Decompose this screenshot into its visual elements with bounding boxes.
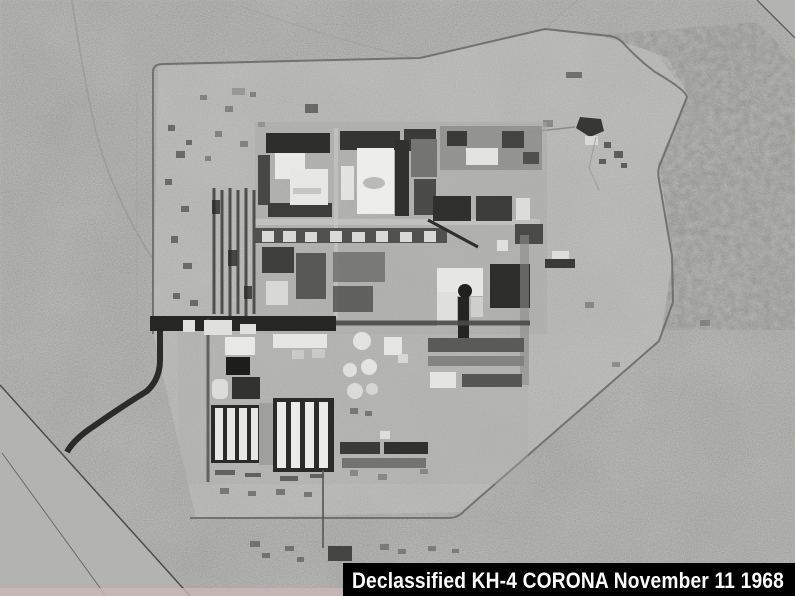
building-white — [204, 320, 232, 335]
ground-mark — [585, 302, 594, 308]
barracks-roof — [319, 402, 328, 468]
small-structure — [566, 72, 582, 78]
barracks-roof — [215, 408, 223, 460]
building-dark — [232, 377, 260, 399]
building-white — [384, 337, 402, 355]
photo-canvas: Declassified KH-4 CORONA November 11 196… — [0, 0, 795, 596]
ground-mark — [452, 549, 459, 553]
building-dark — [502, 131, 524, 148]
ground-mark — [176, 151, 185, 158]
building-white — [292, 350, 304, 359]
building-dark — [266, 133, 330, 153]
building-white — [400, 232, 412, 242]
ground-mark — [280, 476, 298, 481]
ground-mark — [165, 179, 172, 185]
ground-mark — [428, 546, 436, 551]
ground-mark — [398, 549, 406, 554]
small-structure — [621, 163, 627, 168]
building-dark — [262, 247, 294, 273]
building-white — [273, 334, 327, 348]
building-white — [466, 148, 498, 165]
ground-mark — [168, 125, 175, 131]
building-gray — [296, 253, 326, 299]
ground-mark — [305, 104, 318, 113]
building-dark — [476, 196, 512, 221]
ground-mark — [250, 92, 256, 97]
building-white — [262, 231, 274, 242]
building-dark — [226, 357, 250, 375]
small-structure — [599, 159, 606, 164]
building-dark — [258, 155, 270, 205]
ground-mark — [276, 489, 285, 495]
building-white — [266, 281, 288, 305]
street-gap — [259, 403, 273, 465]
ground-mark — [190, 300, 198, 306]
small-structure — [614, 151, 623, 158]
ground-mark — [215, 131, 222, 137]
building-dark — [333, 286, 373, 312]
building-gray — [411, 139, 437, 177]
ground-mark — [350, 470, 358, 476]
ground-mark — [225, 106, 233, 112]
dark-patch — [228, 250, 237, 266]
caption: Declassified KH-4 CORONA November 11 196… — [343, 563, 795, 596]
barracks-roof — [277, 402, 286, 468]
storage-tank — [347, 383, 363, 399]
building-dark — [523, 152, 539, 164]
dark-patch — [328, 546, 352, 561]
building-white — [471, 297, 483, 317]
building-white — [352, 232, 365, 242]
building-white — [240, 324, 256, 334]
roof-mark — [363, 177, 385, 189]
building-white — [430, 372, 456, 388]
ground-mark — [171, 236, 178, 243]
ground-mark — [420, 469, 428, 474]
building-row-base — [428, 338, 524, 352]
ground-mark — [248, 491, 256, 496]
reactor-dome — [458, 284, 472, 298]
building-white — [398, 354, 408, 363]
ground-mark — [220, 488, 229, 494]
building-white — [376, 231, 388, 242]
dark-patch — [212, 200, 220, 214]
ground-mark — [700, 320, 710, 326]
caption-text: Declassified KH-4 CORONA November 11 196… — [352, 568, 784, 593]
storage-tank — [343, 363, 357, 377]
barracks-roof — [305, 402, 314, 468]
building-white — [212, 379, 228, 399]
building-dark — [433, 196, 471, 221]
building-dark — [414, 179, 436, 215]
building-gray — [462, 374, 522, 387]
building-gray — [342, 458, 426, 468]
building-white — [283, 231, 296, 242]
ground-mark — [200, 95, 207, 100]
small-structure — [604, 142, 611, 148]
ground-mark — [262, 553, 270, 558]
dark-patch — [244, 286, 252, 299]
outlying-structure-white — [552, 251, 569, 259]
building-white — [330, 231, 342, 242]
barracks-roof — [239, 408, 247, 460]
building-white — [183, 320, 195, 332]
ground-mark — [173, 293, 180, 299]
ground-mark — [250, 541, 260, 547]
satellite-photo: Declassified KH-4 CORONA November 11 196… — [0, 0, 795, 596]
barracks-roof — [251, 408, 258, 460]
building-dark — [340, 131, 400, 150]
building-white — [380, 431, 390, 439]
building-dark — [447, 131, 467, 146]
building-white — [312, 349, 325, 358]
ground-mark — [304, 492, 312, 497]
building-white — [424, 231, 436, 242]
storage-tank — [353, 332, 371, 350]
storage-tank — [361, 359, 377, 375]
ground-mark — [186, 140, 192, 145]
ground-mark — [183, 263, 192, 269]
ground-mark — [240, 141, 248, 147]
building-dark — [340, 442, 380, 454]
ground-mark — [365, 411, 372, 416]
building-white — [497, 240, 508, 251]
building-shade — [293, 188, 321, 194]
building-dark — [384, 442, 428, 454]
building-dark — [395, 140, 409, 216]
building-white — [305, 232, 317, 242]
ground-mark — [380, 544, 389, 550]
building-white — [341, 166, 354, 200]
ground-mark — [285, 546, 294, 551]
photo-scene — [0, 0, 795, 596]
barracks-roof — [227, 408, 235, 460]
ground-mark — [378, 474, 387, 480]
building-dark — [268, 203, 332, 217]
building-white — [290, 169, 328, 205]
ground-mark — [612, 362, 620, 367]
ground-mark — [215, 470, 235, 475]
film-edge-pink-strip — [0, 588, 345, 596]
barracks-roof — [291, 402, 300, 468]
ground-mark — [232, 88, 245, 95]
building-gray — [333, 252, 385, 282]
building-white — [225, 337, 255, 355]
building-white — [516, 198, 530, 220]
ground-mark — [181, 206, 189, 212]
building-row-base — [428, 356, 524, 366]
storage-tank — [366, 383, 378, 395]
ground-mark — [245, 473, 261, 477]
outlying-structure-dark — [545, 259, 575, 268]
ground-mark — [205, 156, 211, 161]
ground-mark — [350, 408, 358, 414]
ground-mark — [297, 557, 304, 562]
ground-mark — [310, 474, 324, 478]
